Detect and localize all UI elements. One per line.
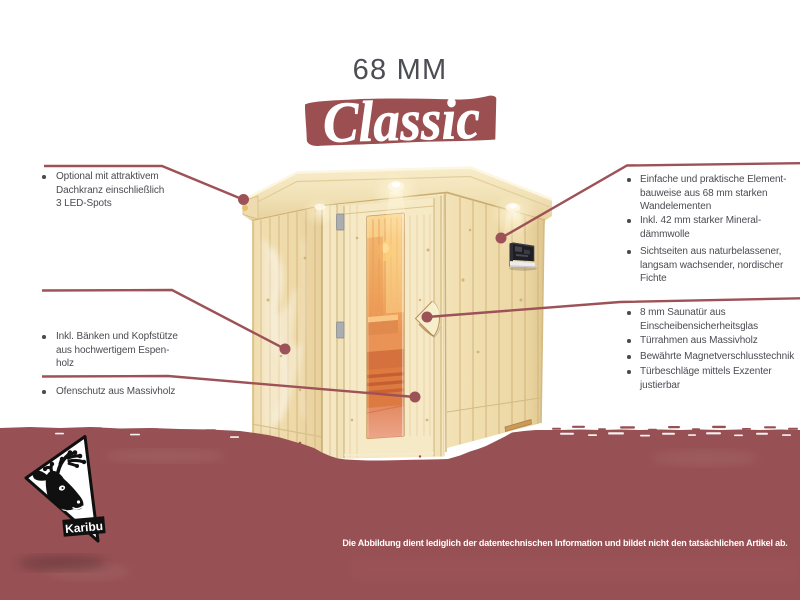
svg-text:Classic: Classic: [322, 86, 481, 155]
